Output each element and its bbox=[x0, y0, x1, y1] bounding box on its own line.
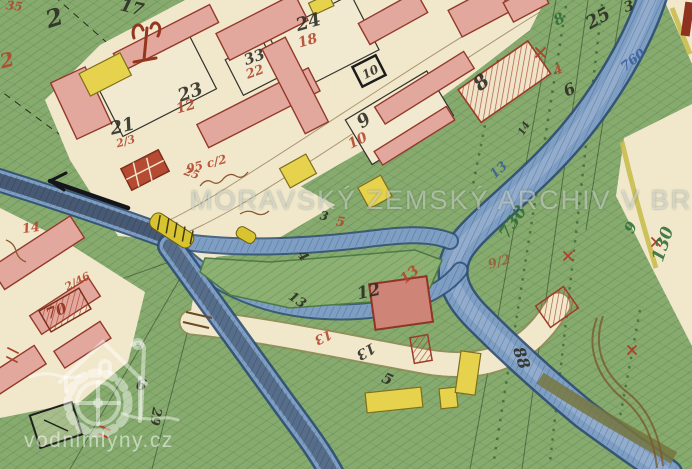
archive-watermark-text: MORAVSKÝ ZEMSKÝ ARCHIV V BR bbox=[190, 185, 692, 216]
historical-cadastral-map: 17 2 23 21 24 33 10 9 25 3 8 6 14 3 4 13… bbox=[0, 0, 692, 469]
parcel-number-red-14: 14 bbox=[21, 221, 41, 236]
parcel-number-red-35: 35 bbox=[5, 0, 23, 13]
logo-water-right bbox=[122, 413, 178, 420]
logo-water-left bbox=[30, 374, 80, 378]
parcel-number-red-5: 5 bbox=[335, 215, 346, 229]
parcel-number-black-12: 12 bbox=[355, 282, 382, 304]
site-watermark-text: vodnimlyny.cz bbox=[24, 429, 174, 453]
